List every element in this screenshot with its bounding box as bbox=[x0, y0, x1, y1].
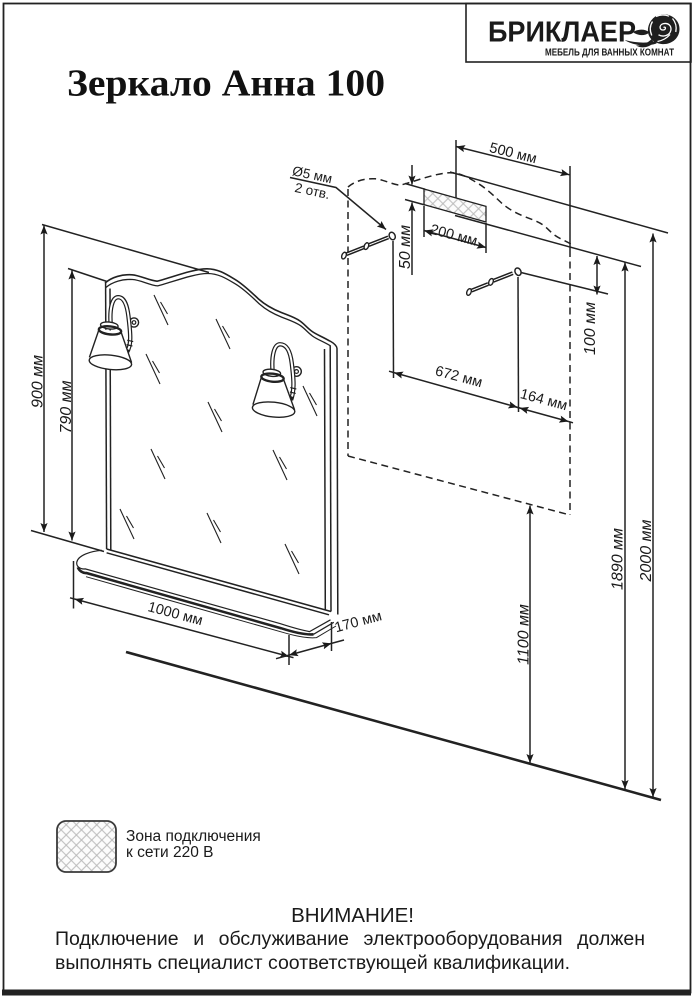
svg-text:500 мм: 500 мм bbox=[488, 140, 539, 167]
svg-text:МЕБЕЛЬ ДЛЯ ВАННЫХ КОМНАТ: МЕБЕЛЬ ДЛЯ ВАННЫХ КОМНАТ bbox=[545, 48, 674, 59]
svg-text:50 мм: 50 мм bbox=[397, 225, 414, 269]
svg-text:2000 мм: 2000 мм bbox=[638, 519, 655, 582]
svg-text:1100 мм: 1100 мм bbox=[516, 604, 533, 665]
svg-text:200 мм: 200 мм bbox=[428, 222, 479, 250]
svg-text:790 мм: 790 мм bbox=[58, 380, 75, 433]
svg-text:Зеркало Анна 100: Зеркало Анна 100 bbox=[67, 63, 385, 105]
svg-text:1890 мм: 1890 мм bbox=[610, 528, 627, 590]
svg-text:БРИКЛАЕР: БРИКЛАЕР bbox=[488, 17, 636, 49]
svg-text:100 мм: 100 мм bbox=[582, 302, 599, 355]
svg-text:170 мм: 170 мм bbox=[333, 608, 384, 636]
svg-text:672 мм: 672 мм bbox=[433, 363, 484, 391]
svg-text:900 мм: 900 мм bbox=[30, 355, 47, 408]
